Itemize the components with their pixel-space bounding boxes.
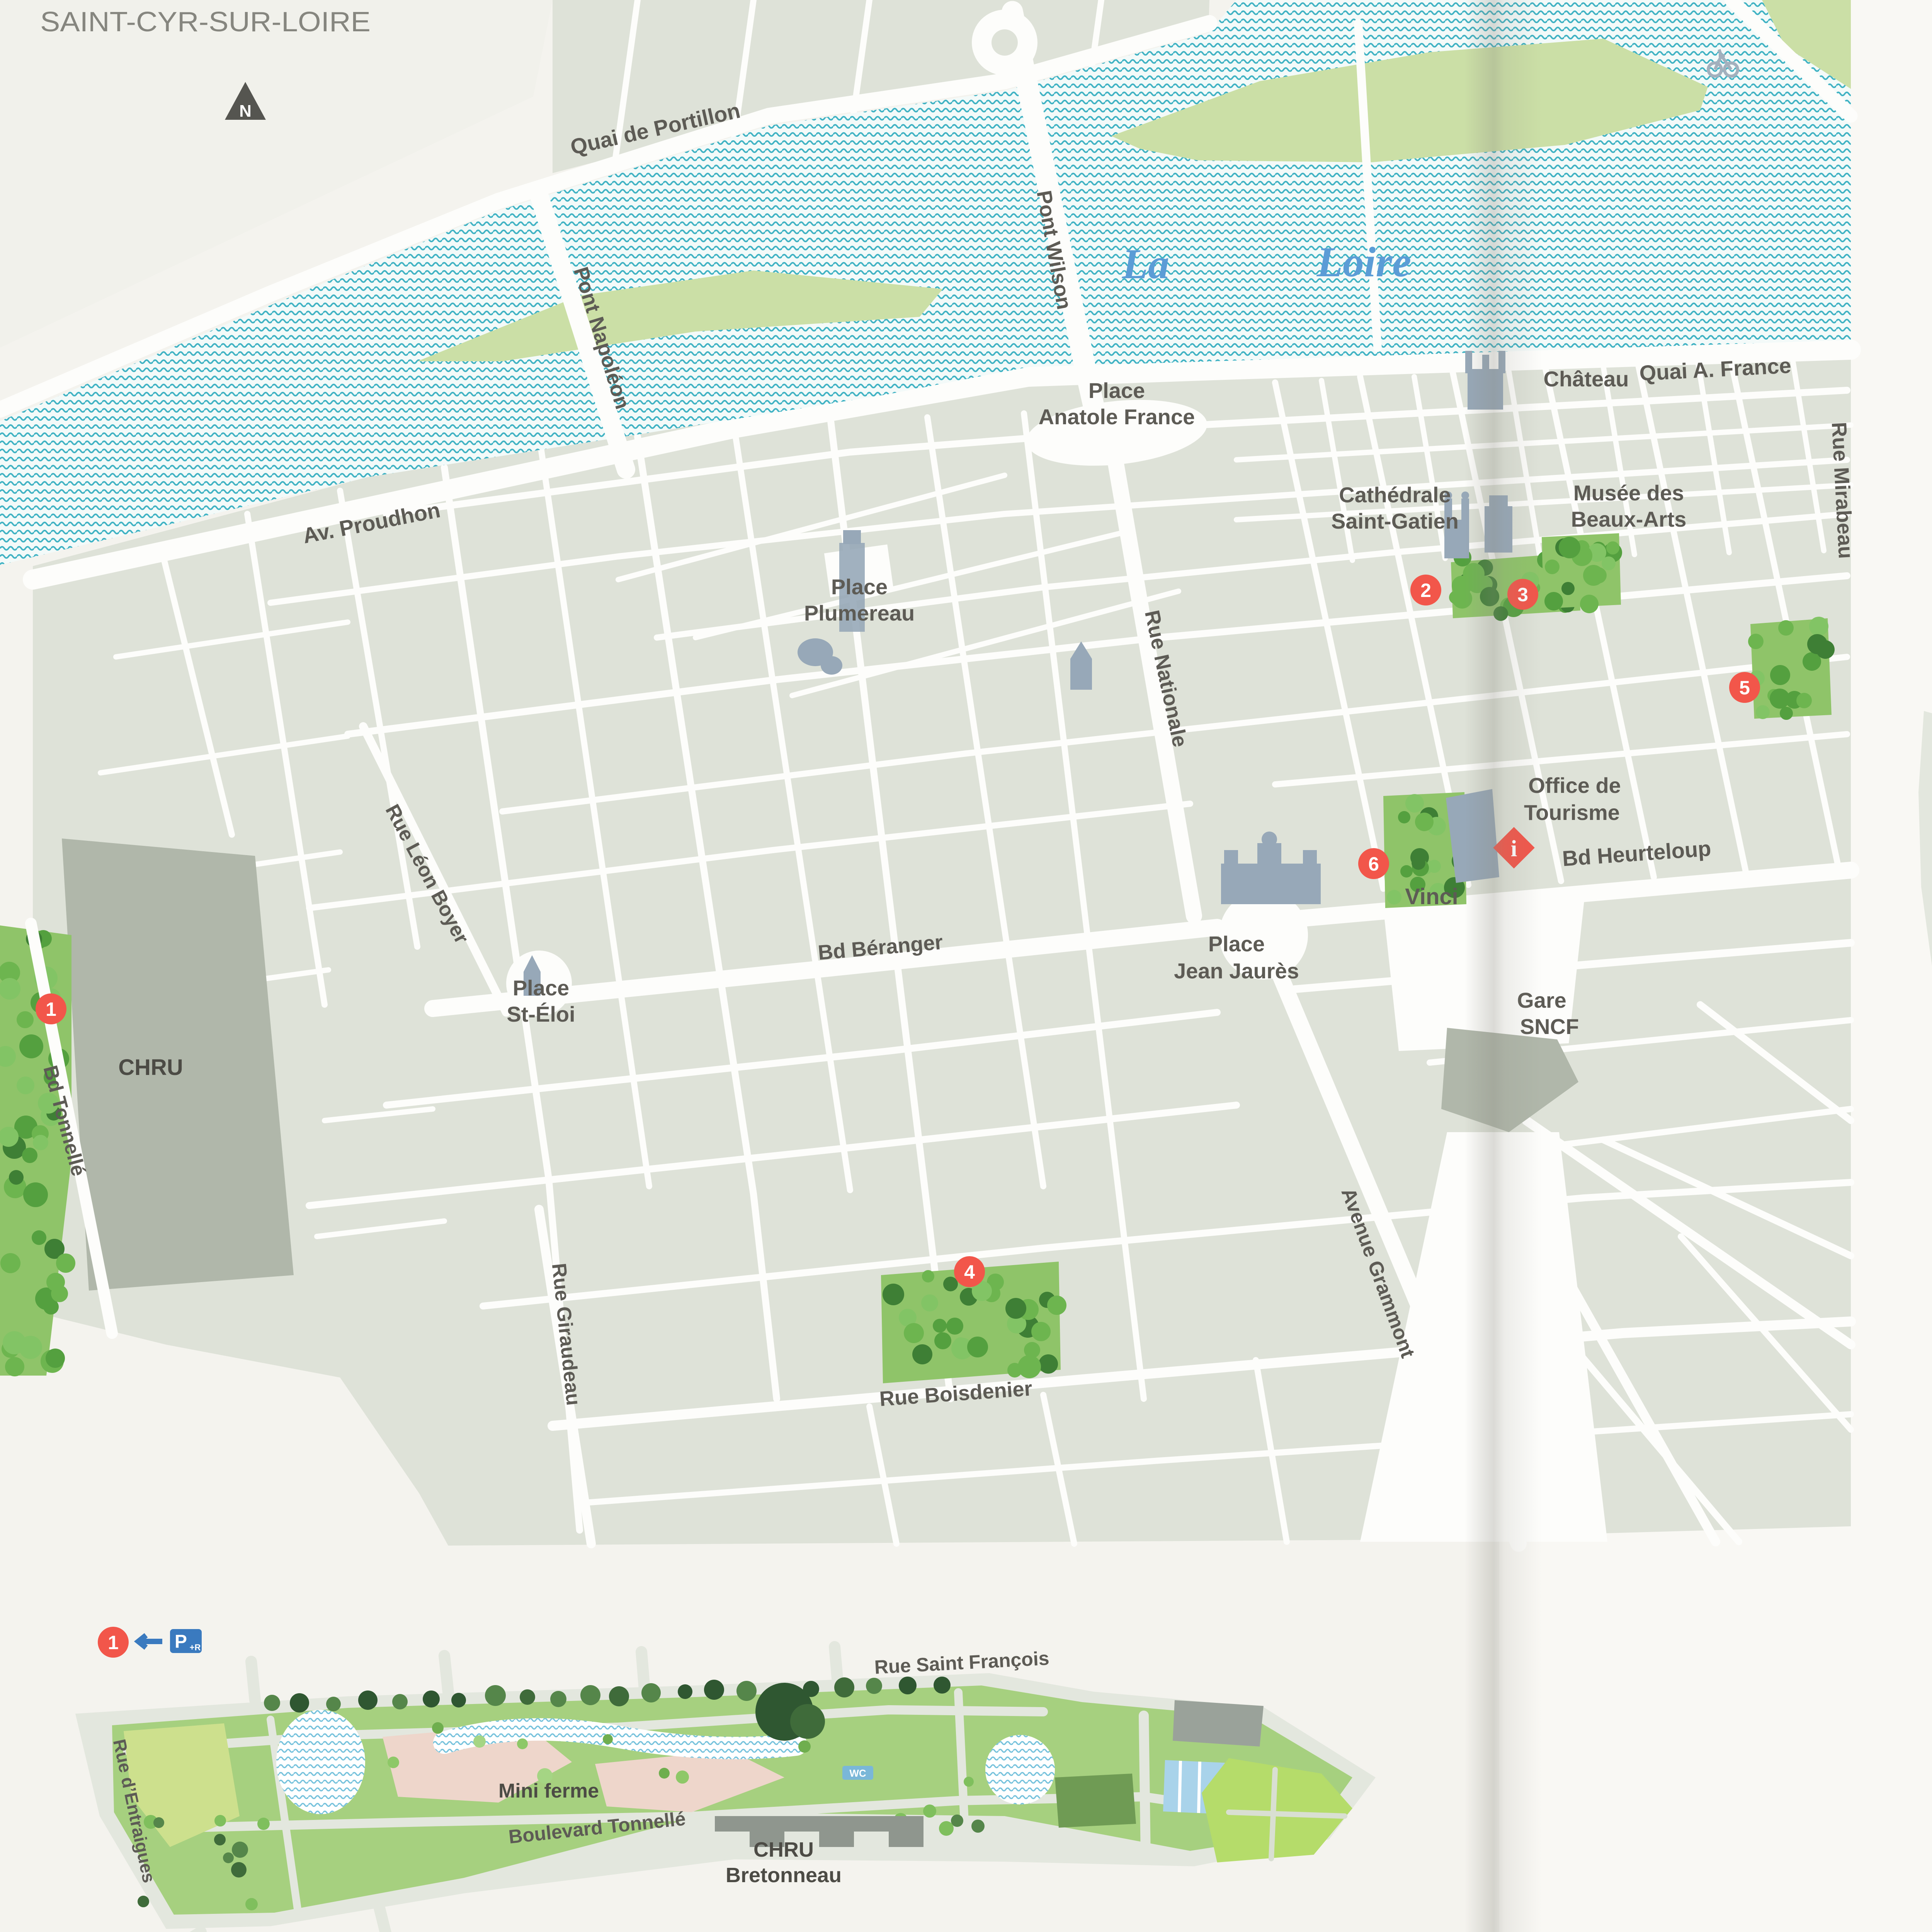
svg-text:La: La <box>1122 240 1169 287</box>
svg-text:Plumereau: Plumereau <box>804 601 915 625</box>
svg-text:Place: Place <box>831 575 888 599</box>
svg-text:CHRU: CHRU <box>118 1055 183 1080</box>
svg-text:SAINT-CYR-SUR-LOIRE: SAINT-CYR-SUR-LOIRE <box>40 7 371 37</box>
svg-text:Loire: Loire <box>1316 238 1411 286</box>
svg-text:4: 4 <box>964 1261 975 1283</box>
svg-text:Château: Château <box>1544 367 1629 391</box>
svg-text:+R: +R <box>190 1643 201 1652</box>
svg-text:Place: Place <box>513 976 569 1000</box>
svg-text:Mini ferme: Mini ferme <box>498 1780 599 1802</box>
svg-text:Beaux-Arts: Beaux-Arts <box>1571 507 1687 531</box>
svg-text:Anatole France: Anatole France <box>1039 405 1195 429</box>
svg-text:WC: WC <box>849 1767 866 1779</box>
svg-text:Bretonneau: Bretonneau <box>726 1864 842 1887</box>
svg-text:1: 1 <box>108 1632 119 1653</box>
svg-text:Jean Jaurès: Jean Jaurès <box>1174 959 1299 983</box>
svg-text:N: N <box>239 102 252 121</box>
svg-text:P: P <box>175 1631 187 1652</box>
svg-text:5: 5 <box>1739 677 1750 699</box>
svg-text:St-Éloi: St-Éloi <box>507 1002 575 1026</box>
svg-text:Musée des: Musée des <box>1573 481 1684 505</box>
svg-text:Office de: Office de <box>1528 773 1621 798</box>
svg-text:2: 2 <box>1420 580 1431 601</box>
svg-text:Place: Place <box>1088 378 1145 403</box>
svg-text:1: 1 <box>46 998 56 1020</box>
svg-text:Saint-Gatien: Saint-Gatien <box>1331 509 1459 533</box>
svg-text:Cathédrale: Cathédrale <box>1339 483 1451 507</box>
svg-text:Place: Place <box>1208 932 1265 956</box>
svg-text:6: 6 <box>1368 853 1379 875</box>
svg-text:Vinci: Vinci <box>1405 884 1458 909</box>
svg-text:CHRU: CHRU <box>753 1838 814 1861</box>
